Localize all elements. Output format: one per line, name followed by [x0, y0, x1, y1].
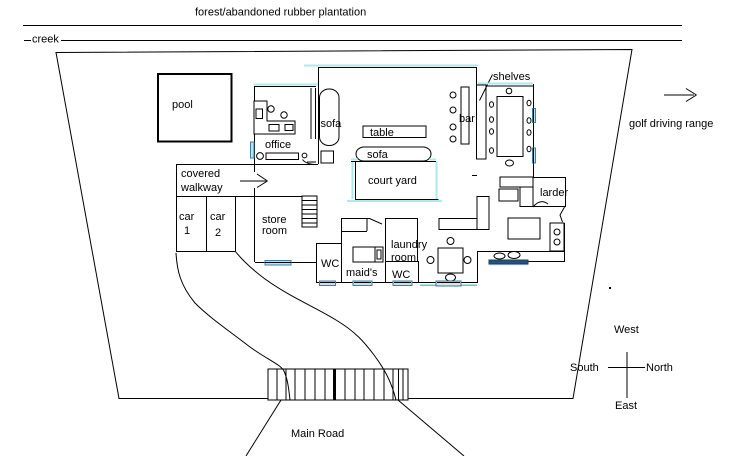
svg-text:covered: covered: [181, 168, 220, 180]
svg-text:room: room: [391, 252, 416, 264]
svg-text:office: office: [265, 139, 291, 151]
svg-text:pool: pool: [172, 99, 193, 111]
svg-text:forest/abandoned rubber planta: forest/abandoned rubber plantation: [195, 7, 366, 19]
svg-text:Main Road: Main Road: [291, 428, 344, 440]
svg-text:1: 1: [184, 225, 190, 237]
svg-text:WC: WC: [392, 269, 410, 281]
svg-text:car: car: [210, 211, 226, 223]
svg-text:WC: WC: [321, 258, 339, 270]
svg-text:North: North: [646, 362, 673, 374]
svg-text:sofa: sofa: [367, 149, 389, 161]
svg-text:West: West: [614, 324, 639, 336]
svg-text:shelves: shelves: [493, 71, 531, 83]
svg-text:creek: creek: [32, 34, 59, 46]
svg-text:bar: bar: [459, 113, 475, 125]
svg-text:walkway: walkway: [180, 182, 223, 194]
svg-text:car: car: [179, 211, 195, 223]
svg-text:table: table: [370, 127, 394, 139]
svg-text:sofa: sofa: [321, 118, 343, 130]
svg-text:larder: larder: [540, 187, 568, 199]
svg-text:court yard: court yard: [368, 175, 417, 187]
svg-text:2: 2: [215, 227, 221, 239]
svg-text:East: East: [615, 400, 637, 412]
svg-text:maid's: maid's: [346, 267, 378, 279]
svg-text:room: room: [262, 225, 287, 237]
svg-text:South: South: [570, 362, 599, 374]
svg-text:golf driving range: golf driving range: [629, 118, 713, 130]
svg-text:laundry: laundry: [391, 239, 428, 251]
